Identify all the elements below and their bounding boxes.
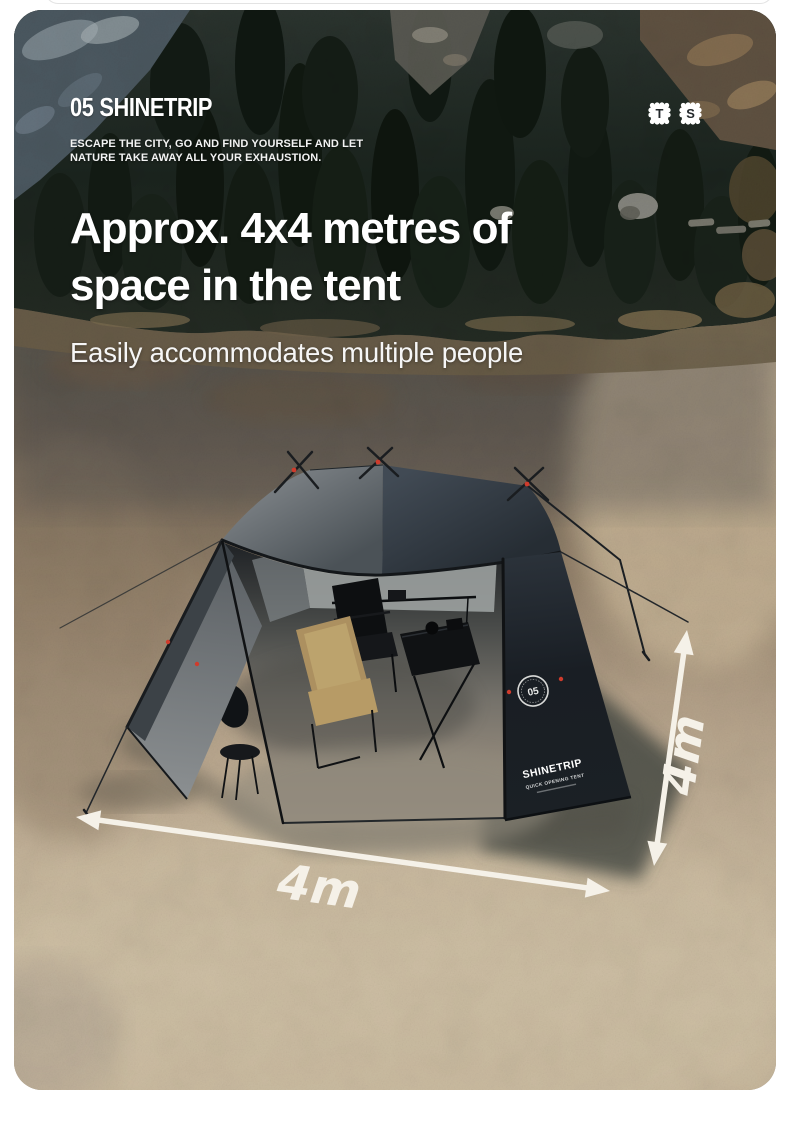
page: 05 SHINETRIP QUICK OPENING TENT: [0, 0, 790, 1125]
width-dimension-label: 4m: [273, 854, 364, 921]
tent-photo-card: 05 SHINETRIP QUICK OPENING TENT: [14, 10, 776, 1090]
depth-dimension-label: 4m: [651, 711, 716, 799]
tent-photo-illustration: 05 SHINETRIP QUICK OPENING TENT: [14, 10, 776, 1090]
previous-card-edge: [45, 0, 773, 4]
